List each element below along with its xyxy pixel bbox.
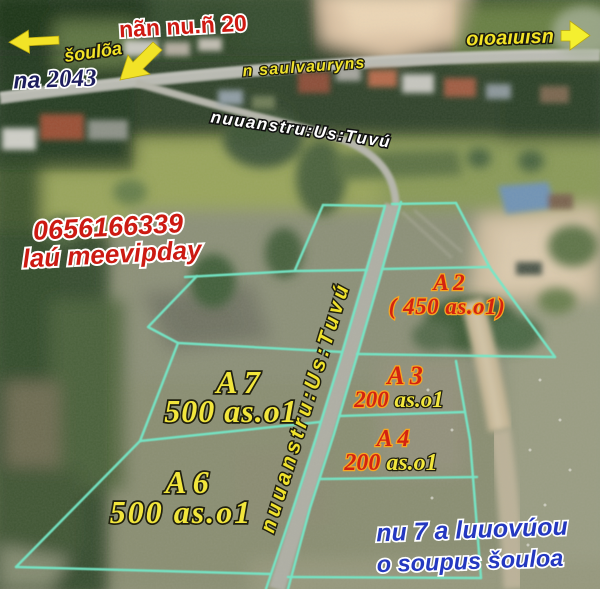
svg-text:na 2043: na 2043 [13, 65, 97, 95]
svg-text:200 as.o1: 200 as.o1 [343, 450, 437, 476]
svg-text:500 as.o1: 500 as.o1 [110, 494, 252, 530]
svg-text:A 4: A 4 [375, 426, 410, 452]
svg-text:A 3: A 3 [385, 361, 422, 390]
svg-text:500 as.o1: 500 as.o1 [164, 393, 297, 429]
svg-text:200 as.o1: 200 as.o1 [353, 387, 443, 412]
svg-text:( 450 as.o1): ( 450 as.o1) [389, 294, 506, 319]
svg-text:oıoaıuısn: oıoaıuısn [466, 25, 555, 50]
svg-text:A 2: A 2 [431, 270, 464, 295]
